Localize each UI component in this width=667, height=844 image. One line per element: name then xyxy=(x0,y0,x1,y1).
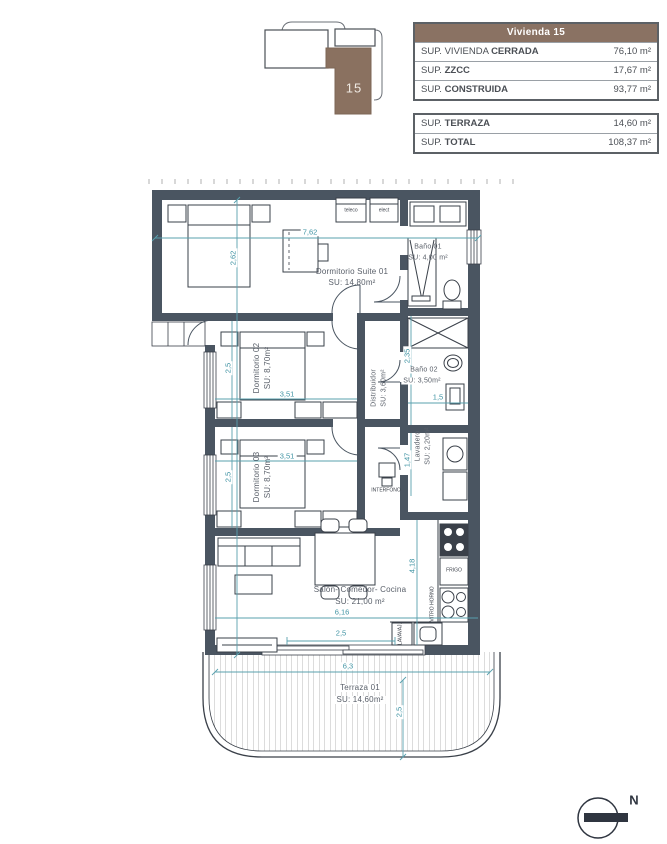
north-label: N xyxy=(629,793,638,808)
dresser xyxy=(283,230,318,272)
floorplan-sheet: 15 Vivienda 15 SUP. VIVIENDA CERRADA 76,… xyxy=(0,0,667,844)
room-label-distribuidor: Distribuidor xyxy=(371,369,378,407)
dim-terraza-height: 2,5 xyxy=(395,705,403,719)
toilet-1 xyxy=(444,280,460,300)
room-label-dorm3: Dormitorio 03 xyxy=(253,452,261,503)
dim-suite-height: 2,62 xyxy=(229,249,237,268)
room-label-bano2: Baño 02 xyxy=(408,367,439,374)
room-area-distribuidor: SU: 3,60m² xyxy=(381,369,388,406)
interfono-panel xyxy=(379,463,395,477)
room-area-salon: SU: 21,00 m² xyxy=(335,598,385,606)
coffee-table xyxy=(235,575,272,594)
room-area-bano2: SU: 3,50m² xyxy=(401,378,442,385)
room-label-terraza: Terraza 01 xyxy=(338,684,382,692)
room-area-bano1: SU: 4,00 m² xyxy=(408,255,448,262)
bed-suite xyxy=(188,205,250,287)
room-label-suite: Dormitorio Suite 01 xyxy=(316,268,388,276)
room-label-dorm2: Dormitorio 02 xyxy=(253,343,261,394)
elect-label: elect xyxy=(379,209,390,214)
teleco-label: teleco xyxy=(344,209,357,214)
room-area-suite: SU: 14,80m² xyxy=(328,279,375,287)
dim-dorm2-width: 3,51 xyxy=(278,390,297,398)
dim-dorm3-height: 2,5 xyxy=(224,470,232,484)
dim-bano2-width: 1,5 xyxy=(431,393,445,401)
room-label-lavadero: Lavadero xyxy=(415,431,422,462)
hob xyxy=(440,524,468,556)
interfono-label: INTERFONO xyxy=(371,489,400,494)
floor-plan-drawing xyxy=(0,0,667,844)
room-area-dorm2: SU: 8,70m² xyxy=(264,347,272,389)
room-label-salon: Salón- Comedor- Cocina xyxy=(314,586,406,594)
bed-dorm3 xyxy=(240,440,305,508)
dim-dorm2-height: 2,5 xyxy=(224,361,232,375)
sliding-door xyxy=(262,645,425,655)
dining-table xyxy=(315,533,375,585)
room-area-terraza: SU: 14,60m² xyxy=(334,696,385,704)
sofa xyxy=(218,538,300,566)
frigo-label: FRIGO xyxy=(446,569,462,574)
dim-dorm3-width: 3,51 xyxy=(278,452,297,460)
dim-lavadero-height: 1,47 xyxy=(403,451,411,470)
room-label-bano1: Baño 01 xyxy=(414,244,441,251)
north-arrow xyxy=(578,798,628,838)
vitro-horno-label: VITRO HORNO xyxy=(431,586,436,621)
dim-salon-door-width: 2,5 xyxy=(334,629,348,637)
dim-terraza-width: 6,3 xyxy=(341,662,355,670)
room-area-lavadero: SU: 2,20m² xyxy=(425,427,432,464)
dim-salon-height: 4,18 xyxy=(408,557,416,576)
dim-bano2-height: 2,35 xyxy=(403,347,411,366)
lavavajillas-label: LAVAVAJ. xyxy=(399,623,404,645)
room-area-dorm3: SU: 8,70m² xyxy=(264,456,272,498)
dim-suite-width: 7,62 xyxy=(301,228,320,236)
dim-salon-width: 6,16 xyxy=(333,608,352,616)
